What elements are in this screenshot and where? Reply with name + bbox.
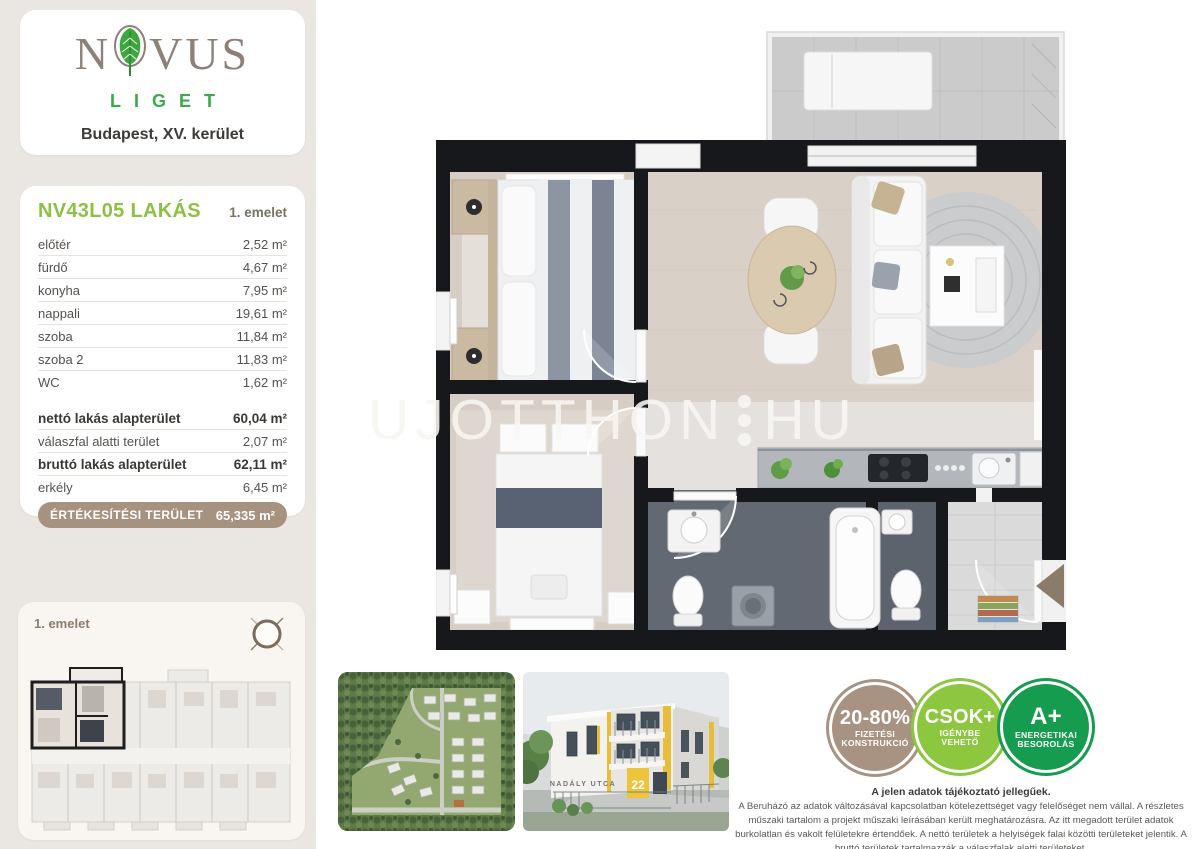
brand-subname: LIGET: [110, 91, 228, 112]
table-row: erkély6,45 m²: [38, 476, 287, 498]
coffee-table: [930, 246, 1004, 326]
table-row: WC1,62 m²: [38, 371, 287, 393]
badge-energy: A+ ENERGETIKAI BESOROLÁS: [1003, 684, 1089, 770]
sale-area-value: 65,335 m²: [216, 508, 275, 523]
building-floorplan-overview: [18, 652, 305, 842]
unit-code: NV43L05 LAKÁS: [38, 200, 201, 223]
balcony: [767, 32, 1064, 150]
unit-info-card: NV43L05 LAKÁS 1. emelet előtér2,52 m² fü…: [20, 186, 305, 516]
building-number-label: 22: [631, 778, 645, 792]
building-street-label: NADÁLY UTCA: [550, 779, 616, 788]
overview-floor-label: 1. emelet: [34, 616, 90, 631]
table-row: bruttó lakás alapterület62,11 m²: [38, 453, 287, 476]
sale-area-highlight: ÉRTÉKESÍTÉSI TERÜLET 65,335 m²: [38, 502, 287, 528]
leaf-icon: [112, 24, 148, 90]
disclaimer-title: A jelen adatok tájékoztató jellegűek.: [728, 786, 1194, 798]
flyer-page: N VUS LIGET Budapest, XV. kerület: [0, 0, 1200, 849]
brand-name-start: N: [75, 31, 111, 77]
sofa: [852, 176, 926, 384]
disclaimer-body: A Beruházó az adatok változásával kapcso…: [728, 800, 1194, 849]
sale-area-label: ÉRTÉKESÍTÉSI TERÜLET: [50, 508, 203, 522]
brand-logo: N VUS: [75, 21, 250, 87]
table-row: fürdő4,67 m²: [38, 256, 287, 279]
disclaimer: A jelen adatok tájékoztató jellegűek. A …: [728, 786, 1194, 849]
table-row: nettó lakás alapterület60,04 m²: [38, 407, 287, 430]
table-row: konyha7,95 m²: [38, 279, 287, 302]
badge-payment: 20-80% FIZETÉSI KONSTRUKCIÓ: [832, 685, 918, 771]
table-row: nappali19,61 m²: [38, 302, 287, 325]
room-area-table: előtér2,52 m² fürdő4,67 m² konyha7,95 m²…: [38, 233, 287, 393]
apartment-floorplan: [436, 30, 1066, 655]
floor-overview-card: 1. emelet: [18, 602, 305, 840]
table-row: szoba 211,83 m²: [38, 348, 287, 371]
entry-details: [978, 596, 1018, 622]
table-row: előtér2,52 m²: [38, 233, 287, 256]
unit-floor: 1. emelet: [229, 205, 287, 220]
brand-card: N VUS LIGET Budapest, XV. kerület: [20, 10, 305, 155]
badge-csok: CSOK+ IGÉNYBE VEHETŐ: [917, 684, 1003, 770]
brand-name-end: VUS: [149, 31, 250, 77]
kitchen-counter: [758, 448, 1044, 488]
table-row: szoba11,84 m²: [38, 325, 287, 348]
building-render-photo: NADÁLY UTCA 22: [523, 672, 729, 831]
aerial-site-photo: [338, 672, 515, 831]
brand-location: Budapest, XV. kerület: [81, 126, 244, 144]
summary-table: nettó lakás alapterület60,04 m² válaszfa…: [38, 407, 287, 498]
table-row: válaszfal alatti terület2,07 m²: [38, 430, 287, 453]
